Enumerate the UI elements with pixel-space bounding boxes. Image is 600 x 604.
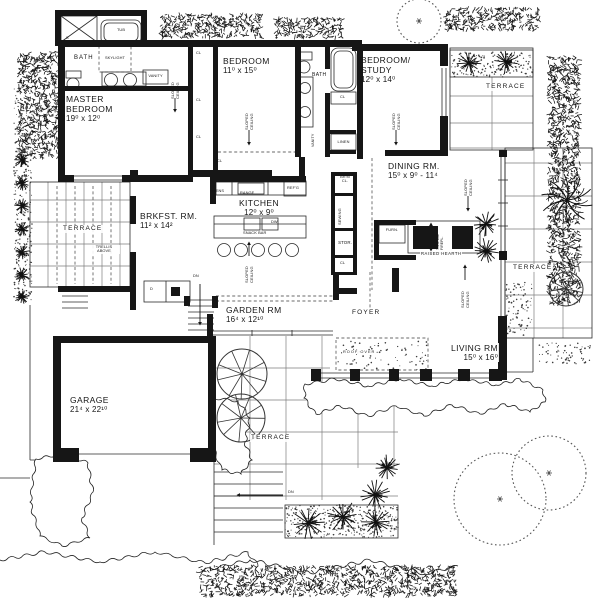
- fireplace-label: TWO-WAY FIREPL.: [437, 233, 445, 250]
- bath-label-1: BATH: [74, 55, 94, 62]
- refrigerator-label: REF'G: [287, 186, 299, 190]
- dishwasher-label: DW: [271, 220, 278, 224]
- sloped-ceiling-label: SLOPED CEILING: [392, 113, 401, 130]
- room-dims: 21⁴ x 22¹⁰: [70, 405, 109, 414]
- range-label: RANGE: [240, 191, 254, 195]
- room-name: BRKFST. RM.: [140, 211, 197, 221]
- snack-bar-label: SNACK BAR: [243, 231, 266, 235]
- terrace-label-south: TERRACE: [250, 434, 291, 442]
- closet-label: CL: [196, 98, 201, 102]
- room-name: GARDEN RM: [226, 305, 282, 315]
- furnace-label: FURN.: [379, 228, 405, 232]
- room-name: DINING RM.: [388, 161, 440, 171]
- skylight-label: SKYLIGHT: [100, 56, 130, 60]
- closet-label: CL: [340, 261, 345, 265]
- vanity-label-vertical: VANITY: [311, 134, 315, 147]
- down-label-2: DN: [287, 490, 295, 494]
- room-dims: 15⁰ x 16⁰: [438, 353, 498, 362]
- room-dims: 11⁰ x 15⁰: [223, 66, 270, 75]
- vanity-label: VANITY: [144, 74, 167, 78]
- raised-hearth-label: RAISED HEARTH: [420, 252, 462, 257]
- room-name: BEDROOM/ STUDY: [361, 55, 410, 75]
- room-dims: 19⁰ x 12⁰: [66, 114, 113, 123]
- room-dims: 16⁴ x 12¹⁰: [226, 315, 282, 324]
- room-label-dining-room: DINING RM.15⁰ x 9⁰ - 11⁴: [388, 161, 440, 180]
- room-label-kitchen: KITCHEN12⁰ x 9⁰: [230, 198, 288, 217]
- room-label-garage: GARAGE21⁴ x 22¹⁰: [70, 395, 109, 414]
- sewing-label: SEWING: [338, 208, 343, 225]
- room-label-bedroom-study: BEDROOM/ STUDY12⁰ x 14⁰: [361, 55, 410, 84]
- tree-and-shrub-icons: [14, 0, 592, 545]
- roof-over-label: ROOF OVER: [342, 350, 376, 354]
- room-name: BEDROOM: [223, 56, 270, 66]
- dryer-label: D: [150, 287, 153, 291]
- bath-label-2: BATH: [312, 73, 327, 79]
- room-dims: 12⁰ x 14⁰: [361, 75, 410, 84]
- room-label-foyer: FOYER: [352, 309, 380, 317]
- room-dims: 15⁰ x 9⁰ - 11⁴: [388, 171, 440, 180]
- room-dims: 11² x 14²: [140, 221, 197, 230]
- sloped-ceiling-label: SLOPED CEILING: [461, 291, 470, 308]
- closet-label: CL: [196, 51, 201, 55]
- room-name: KITCHEN: [239, 198, 279, 208]
- storage-label: STOR.: [334, 240, 356, 245]
- floor-plan: MASTER BEDROOM19⁰ x 12⁰ BEDROOM11⁰ x 15⁰…: [0, 0, 600, 604]
- terrace-label-west: TERRACE: [62, 225, 103, 233]
- linen-label: LINEN: [332, 140, 355, 144]
- trellis-label: TRELLIS ABOVE: [88, 245, 120, 254]
- sloped-ceiling-label: SLOPED CEILING: [245, 266, 254, 283]
- sloped-ceiling-label: SLOPED CEILING: [464, 179, 473, 196]
- sloped-ceiling-label: SLOPED CEILING: [245, 113, 254, 130]
- down-label-1: DN: [193, 274, 199, 278]
- room-label-master-bedroom: MASTER BEDROOM19⁰ x 12⁰: [66, 94, 113, 123]
- closet-label: CL: [217, 159, 222, 163]
- room-name: LIVING RM: [451, 343, 498, 353]
- room-label-bedroom: BEDROOM11⁰ x 15⁰: [223, 56, 270, 75]
- closet-label: CL: [340, 95, 345, 99]
- ovens-label: OVENS: [210, 189, 224, 193]
- broom-closet-label: BR'M CL.: [334, 175, 356, 184]
- room-label-living-room: LIVING RM15⁰ x 16⁰: [437, 343, 499, 362]
- tub-label: TUB: [102, 28, 140, 32]
- room-label-garden-room: GARDEN RM16⁴ x 12¹⁰: [226, 305, 282, 324]
- sloped-ceiling-label: SLOPED CEILING: [171, 82, 180, 99]
- room-name: MASTER BEDROOM: [66, 94, 113, 114]
- room-label-breakfast-room: BRKFST. RM.11² x 14²: [140, 211, 197, 230]
- room-name: GARAGE: [70, 395, 109, 405]
- closet-label: CL: [196, 135, 201, 139]
- terrace-label-ne: TERRACE: [485, 83, 526, 91]
- room-dims: 12⁰ x 9⁰: [230, 208, 288, 217]
- terrace-label-east: TERRACE: [512, 264, 553, 272]
- shower-label: S: [66, 36, 69, 40]
